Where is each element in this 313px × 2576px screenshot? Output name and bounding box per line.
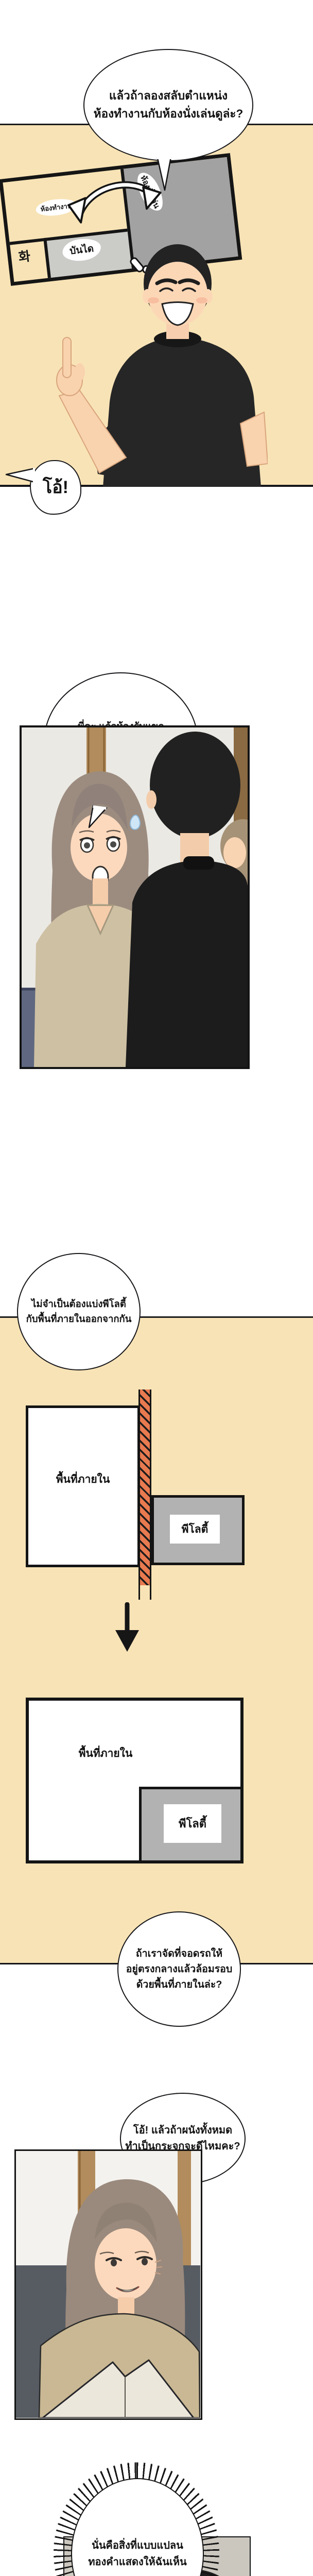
- diagram1-interior-label: พื้นที่ภายใน: [31, 1471, 135, 1488]
- speech-bubble-parking-center: ถ้าเราจัดที่จอดรถให้ อยู่ตรงกลางแล้วล้อม…: [117, 1911, 241, 2027]
- bubble-line: อยู่ตรงกลางแล้วล้อมรอบ: [126, 1961, 233, 1977]
- bubble-tail: [5, 466, 35, 485]
- bubble-line: ห้องทำงานกับห้องนั่งเล่นดูล่ะ?: [94, 105, 244, 123]
- bubble-line: แล้วถ้าลองสลับตำแหน่ง: [109, 87, 228, 105]
- woman-blueprint-illustration: [16, 2151, 200, 2418]
- webtoon-page: ห้องทำงาน ห้องนั่งเล่น บันได 화: [0, 0, 313, 2576]
- floorplan-label-bath: 화: [18, 246, 31, 265]
- photo-panel-couple: [20, 725, 250, 1069]
- couple-scene-illustration: [22, 727, 248, 1067]
- bubble-line: กับพื้นที่ภายในออกจากกัน: [26, 1312, 132, 1327]
- bubble-line: นั่นคือสิ่งที่แบบแปลน: [92, 2537, 183, 2554]
- bubble-text: โอ้!: [43, 474, 68, 501]
- bubble-line: ด้วยพื้นที่ภายในล่ะ?: [136, 1977, 222, 1992]
- diagram1-wall-hatched: [138, 1389, 151, 1585]
- bubble-line: โอ้! แล้วถ้าผนังทั้งหมด: [133, 2123, 232, 2139]
- diagram2-piloti-label: พีโลตี้: [164, 1804, 221, 1843]
- diagram1-wall-lines: [138, 1585, 151, 1600]
- diagram-embedded: พื้นที่ภายใน พีโลตี้: [0, 1698, 313, 1868]
- bubble-line: ไม่จำเป็นต้องแบ่งพีโลตี้: [31, 1297, 126, 1312]
- bubble-line: ถ้าเราจัดที่จอดรถให้: [136, 1946, 222, 1961]
- bubble-tail: [153, 157, 176, 193]
- diagram-side-by-side: พื้นที่ภายใน พีโลตี้: [0, 1386, 313, 1654]
- speech-bubble-swap-rooms: แล้วถ้าลองสลับตำแหน่ง ห้องทำงานกับห้องนั…: [83, 49, 253, 161]
- photo-panel-woman-smiling: [14, 2149, 202, 2420]
- speech-bubble-no-need-divide: ไม่จำเป็นต้องแบ่งพีโลตี้ กับพื้นที่ภายใน…: [17, 1253, 141, 1370]
- speech-bubble-oh: โอ้!: [30, 460, 81, 515]
- diagram1-piloti-label: พีโลตี้: [170, 1515, 220, 1544]
- arrow-down-icon: [109, 1602, 145, 1654]
- man-pointing-illustration: [49, 242, 268, 487]
- bubble-tail: [84, 805, 108, 829]
- bubble-line: ทองคำแสดงให้ฉันเห็น: [88, 2554, 186, 2570]
- diagram2-interior-label: พื้นที่ภายใน: [49, 1745, 162, 1762]
